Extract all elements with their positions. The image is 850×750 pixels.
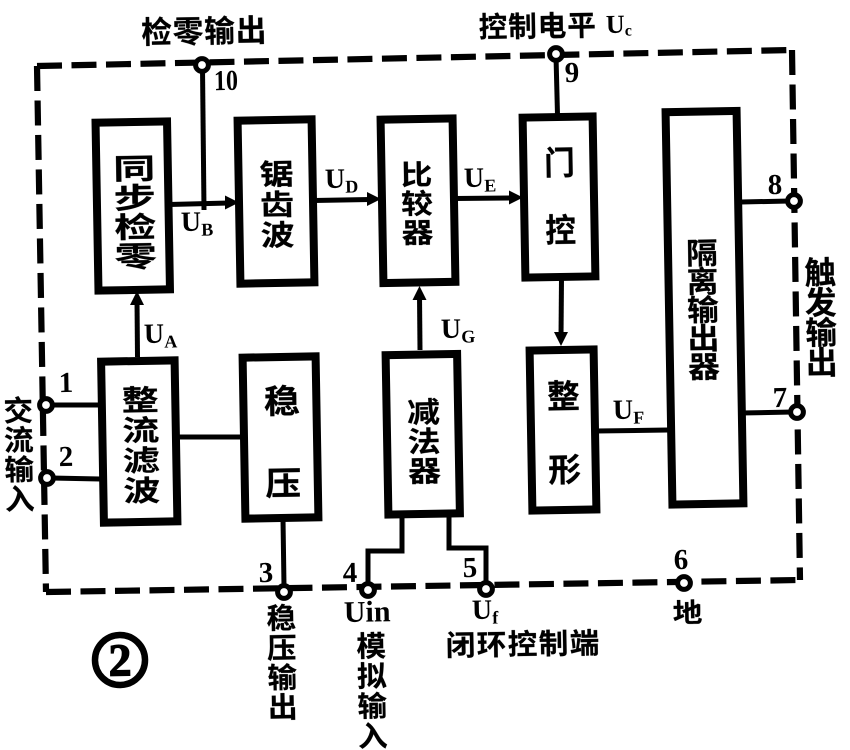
svg-text:UD: UD — [325, 163, 359, 197]
svg-text:2: 2 — [108, 634, 132, 685]
svg-text:UF: UF — [613, 394, 645, 428]
svg-text:1: 1 — [58, 367, 73, 399]
svg-text:UB: UB — [181, 206, 214, 240]
svg-text:Uin: Uin — [344, 595, 392, 629]
svg-text:UE: UE — [464, 162, 497, 196]
svg-text:6: 6 — [673, 544, 688, 576]
svg-text:3: 3 — [258, 557, 273, 589]
svg-text:Uf: Uf — [472, 595, 500, 628]
svg-text:10: 10 — [214, 65, 239, 97]
svg-text:5: 5 — [462, 552, 477, 584]
svg-text:8: 8 — [767, 169, 782, 201]
svg-text:4: 4 — [342, 557, 357, 589]
svg-text:7: 7 — [772, 382, 787, 414]
svg-text:2: 2 — [58, 441, 73, 473]
svg-text:Uc: Uc — [606, 10, 632, 40]
svg-text:UA: UA — [144, 318, 178, 352]
svg-text:9: 9 — [564, 57, 579, 89]
svg-text:UG: UG — [441, 313, 476, 347]
